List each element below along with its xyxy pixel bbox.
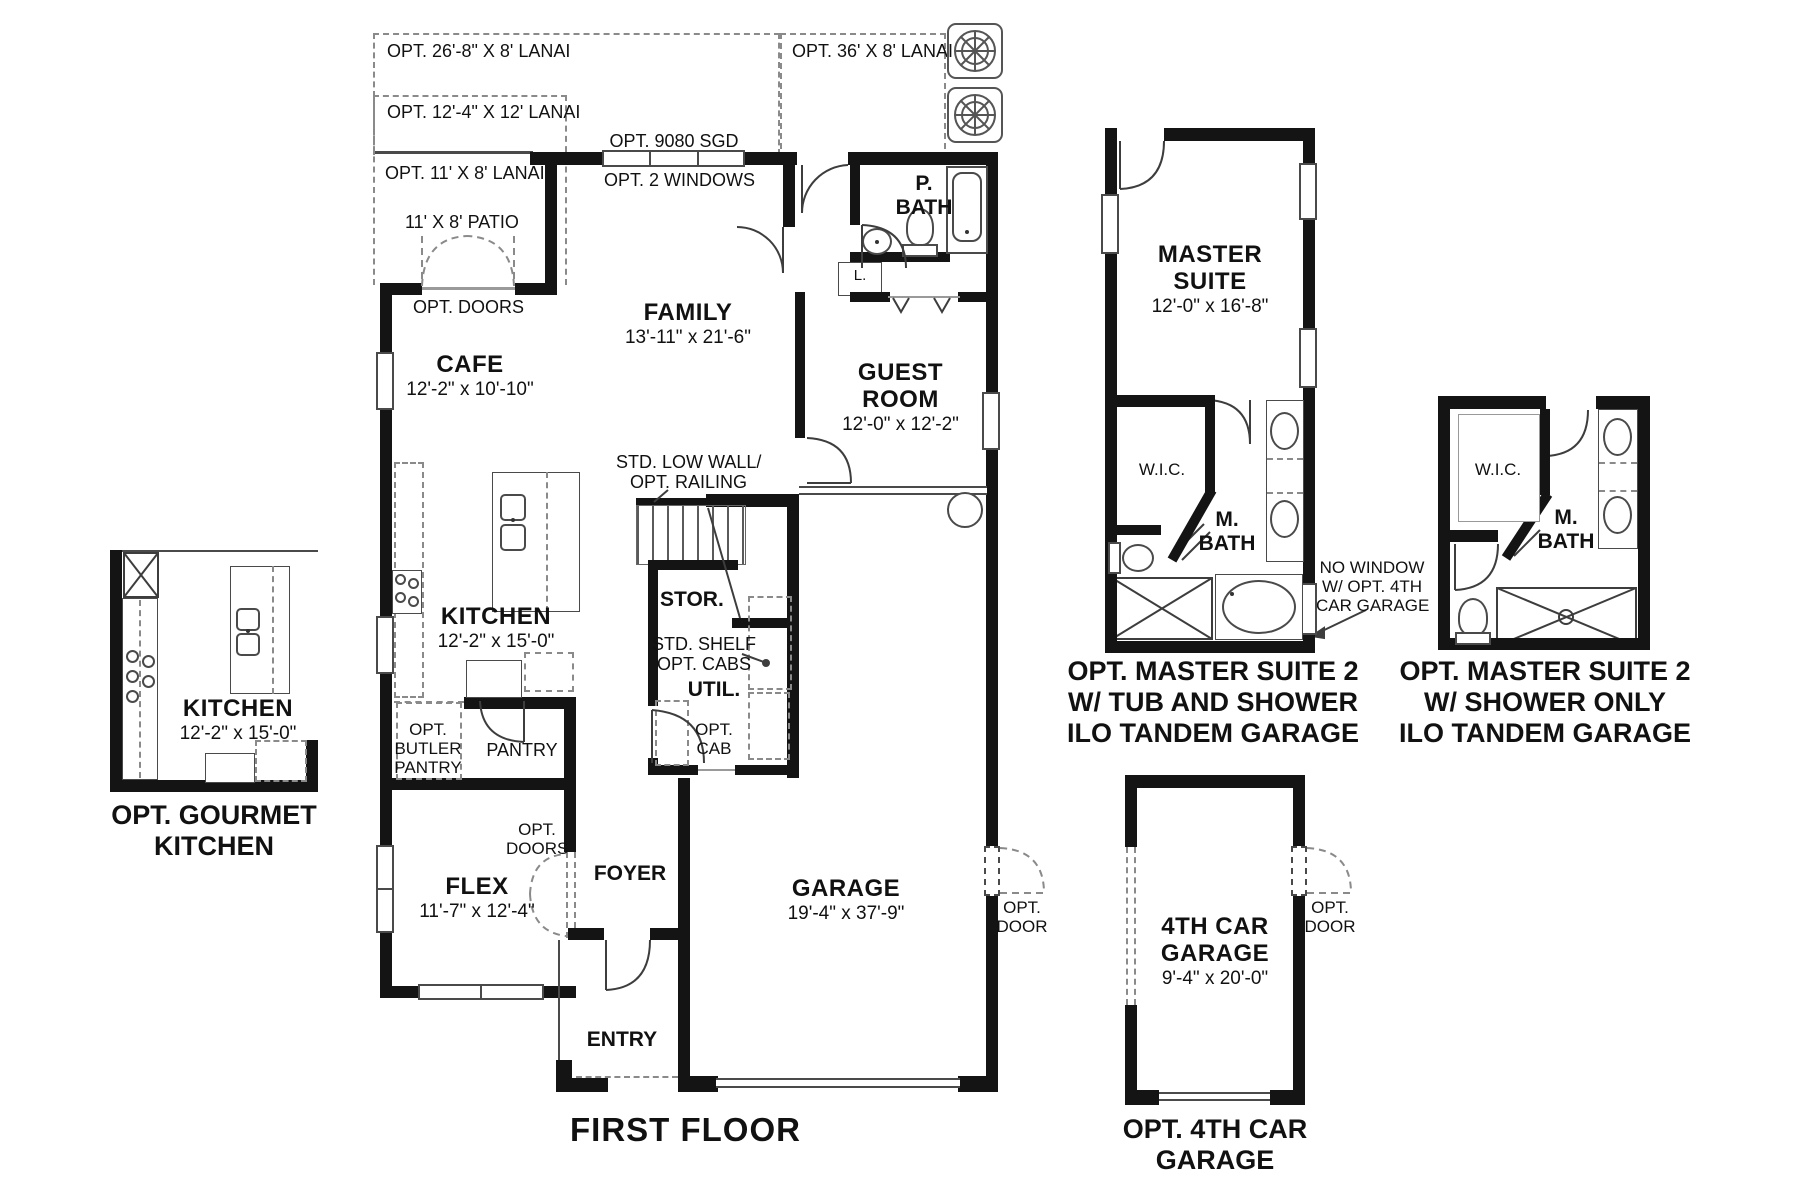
m2-wall-wic-right xyxy=(1540,409,1550,495)
pantry-label: PANTRY xyxy=(484,740,560,760)
util-label: UTIL. xyxy=(684,678,744,702)
m1-tub-faucet xyxy=(1230,592,1234,596)
pbath-label: P. BATH xyxy=(893,172,955,219)
gourmet-kitchen-name: KITCHEN xyxy=(162,696,314,723)
cafe-dims: 12'-2" x 10'-10" xyxy=(400,379,540,400)
kitchen-label: KITCHEN 12'-2" x 15'-0" xyxy=(418,604,574,652)
guest-label: GUEST ROOM 12'-0" x 12'-2" xyxy=(828,360,973,435)
m1-title-line2: W/ TUB AND SHOWER xyxy=(1058,687,1368,718)
m1-window-right-2 xyxy=(1299,328,1317,388)
first-floor-title: FIRST FLOOR xyxy=(558,1112,813,1149)
g4-opt-door-label: OPT. DOOR xyxy=(1300,898,1360,936)
m1-vanity-dash-2 xyxy=(1267,492,1303,496)
master1-entry-door-arc xyxy=(1120,141,1164,189)
gourmet-title: OPT. GOURMET KITCHEN xyxy=(88,800,340,862)
g4-name-line1: 4TH CAR xyxy=(1146,914,1284,941)
opt-doors-flex-line2: DOORS xyxy=(506,839,568,858)
gourmet-counter-dash xyxy=(139,600,143,778)
g4-wall-right xyxy=(1293,775,1305,1105)
m2-vanity-dash-2 xyxy=(1599,490,1637,494)
guest-v-mark-1 xyxy=(893,298,909,312)
family-dims: 13'-11" x 21'-6" xyxy=(613,327,763,348)
opt-doors-flex-line1: OPT. xyxy=(506,820,568,839)
gourmet-title-line1: OPT. GOURMET xyxy=(88,800,340,831)
m1-toilet-tank-icon xyxy=(1108,542,1121,574)
m2-title: OPT. MASTER SUITE 2 W/ SHOWER ONLY ILO T… xyxy=(1390,656,1700,748)
gourmet-burner-5 xyxy=(126,690,139,703)
m1-wall-wic-bottom xyxy=(1105,525,1161,535)
gourmet-sink-faucet xyxy=(246,629,250,633)
low-wall-label: STD. LOW WALL/ OPT. RAILING xyxy=(616,452,761,492)
m2-wic-label: W.I.C. xyxy=(1464,460,1532,479)
m1-sink-icon-1 xyxy=(1270,412,1299,450)
guest-dims: 12'-0" x 12'-2" xyxy=(828,414,973,435)
gourmet-wall-right-stub xyxy=(306,740,318,792)
m1-no-window-line2: W/ OPT. 4TH xyxy=(1316,577,1428,596)
flex-label: FLEX 11'-7" x 12'-4" xyxy=(412,874,542,922)
m2-wall-right xyxy=(1638,396,1650,650)
m1-title: OPT. MASTER SUITE 2 W/ TUB AND SHOWER IL… xyxy=(1058,656,1368,748)
m1-no-window-line3: CAR GARAGE xyxy=(1316,596,1428,615)
g4-opt-door-opening xyxy=(1291,846,1307,896)
g4-garage-door-opening xyxy=(1159,1092,1270,1101)
g4-door-stub-left xyxy=(1125,1090,1159,1105)
g4-left-dash-a xyxy=(1126,847,1130,1005)
m2-mbath-label: M. BATH xyxy=(1530,506,1602,553)
m1-no-window-line1: NO WINDOW xyxy=(1316,558,1428,577)
m1-master-line1: MASTER xyxy=(1136,242,1284,269)
m1-master-label: MASTER SUITE 12'-0" x 16'-8" xyxy=(1136,242,1284,317)
low-wall-line1: STD. LOW WALL/ xyxy=(616,452,761,472)
m2-title-line3: ILO TANDEM GARAGE xyxy=(1390,718,1700,749)
front-door-arc xyxy=(606,940,650,990)
m1-title-line1: OPT. MASTER SUITE 2 xyxy=(1058,656,1368,687)
cafe-name: CAFE xyxy=(400,352,540,379)
g4-title-line1: OPT. 4TH CAR xyxy=(1116,1114,1314,1145)
m1-window-right-1 xyxy=(1299,163,1317,220)
m1-mbath-label: M. BATH xyxy=(1192,508,1262,555)
opt-cab-line1: OPT. xyxy=(686,720,742,739)
garage-dims: 19'-4" x 37'-9" xyxy=(780,903,912,924)
m1-wall-wic-right xyxy=(1205,395,1215,493)
butler-line1: OPT. xyxy=(394,720,462,739)
g4-wall-left-top xyxy=(1125,775,1137,847)
m2-toilet-tank-icon xyxy=(1455,632,1491,645)
foyer-label: FOYER xyxy=(592,862,668,886)
guest-door-arc xyxy=(807,438,851,483)
m2-vanity-dash-1 xyxy=(1599,462,1637,466)
m1-toilet-bowl-icon xyxy=(1122,544,1154,572)
floor-plan-canvas: OPT. 26'-8" X 8' LANAI OPT. 12'-4" X 12'… xyxy=(0,0,1800,1200)
m2-title-line1: OPT. MASTER SUITE 2 xyxy=(1390,656,1700,687)
patio-opt-door-arc-left xyxy=(422,236,467,286)
family-top-door-arc xyxy=(802,165,848,213)
gourmet-cab-dashed xyxy=(255,740,307,782)
m1-master-dims: 12'-0" x 16'-8" xyxy=(1136,296,1284,317)
m2-mbath-line1: M. xyxy=(1530,506,1602,530)
g4-wall-top xyxy=(1125,775,1305,788)
garage4-opt-door-arc xyxy=(1307,848,1351,893)
gourmet-sink-a xyxy=(236,608,260,631)
butler-line3: PANTRY xyxy=(394,758,462,777)
pbath-door-arc xyxy=(862,225,906,268)
garage-opt-door-arc xyxy=(1000,848,1044,893)
g4-title-line2: GARAGE xyxy=(1116,1145,1314,1176)
g4-opt-door-line1: OPT. xyxy=(1300,898,1360,917)
m1-tub-inner xyxy=(1222,580,1296,634)
butler-line2: BUTLER xyxy=(394,739,462,758)
gourmet-sink-b xyxy=(236,633,260,656)
g4-left-dash-b xyxy=(1134,847,1138,1005)
m2-wall-left xyxy=(1438,396,1450,650)
guest-name-2: ROOM xyxy=(828,387,973,414)
g4-title: OPT. 4TH CAR GARAGE xyxy=(1116,1114,1314,1176)
gourmet-title-line2: KITCHEN xyxy=(88,831,340,862)
family-label: FAMILY 13'-11" x 21'-6" xyxy=(613,300,763,348)
m2-toilet-bowl-icon xyxy=(1458,598,1488,636)
guest-name-1: GUEST xyxy=(828,360,973,387)
m1-no-window-label: NO WINDOW W/ OPT. 4TH CAR GARAGE xyxy=(1316,558,1428,615)
flex-dims: 11'-7" x 12'-4" xyxy=(412,901,542,922)
gourmet-burner-4 xyxy=(142,675,155,688)
m1-sink-icon-2 xyxy=(1270,500,1299,538)
low-wall-line2: OPT. RAILING xyxy=(616,472,761,492)
m2-sink-icon-1 xyxy=(1603,418,1632,456)
gourmet-burner-2 xyxy=(142,655,155,668)
family-name: FAMILY xyxy=(613,300,763,327)
shelf-leader-dot xyxy=(763,660,769,666)
opt-door-garage-line2: DOOR xyxy=(992,917,1052,936)
opt-cab-line2: CAB xyxy=(686,739,742,758)
gourmet-top-line xyxy=(110,550,318,552)
opt-door-garage-line1: OPT. xyxy=(992,898,1052,917)
kitchen-name: KITCHEN xyxy=(418,604,574,631)
shelf-label: STD. SHELF OPT. CABS xyxy=(652,634,756,674)
cafe-label: CAFE 12'-2" x 10'-10" xyxy=(400,352,540,400)
shelf-line1: STD. SHELF xyxy=(652,634,756,654)
m1-mbath-line2: BATH xyxy=(1192,532,1262,556)
g4-dims: 9'-4" x 20'-0" xyxy=(1146,968,1284,989)
gourmet-kitchen-dims: 12'-2" x 15'-0" xyxy=(162,723,314,744)
kitchen-dims: 12'-2" x 15'-0" xyxy=(418,631,574,652)
g4-opt-door-line2: DOOR xyxy=(1300,917,1360,936)
entry-label: ENTRY xyxy=(584,1028,660,1052)
master2-left-door-arc xyxy=(1455,544,1498,590)
flex-name: FLEX xyxy=(412,874,542,901)
gourmet-kitchen-label: KITCHEN 12'-2" x 15'-0" xyxy=(162,696,314,744)
gourmet-counter-bottom xyxy=(205,753,255,783)
patio-opt-door-arc-right xyxy=(467,236,514,286)
m1-window-left xyxy=(1101,194,1119,254)
g4-name-line2: GARAGE xyxy=(1146,941,1284,968)
m2-wall-mid-left xyxy=(1438,530,1498,542)
m1-wall-bottom xyxy=(1105,641,1315,653)
m2-title-line2: W/ SHOWER ONLY xyxy=(1390,687,1700,718)
g4-door-stub-right xyxy=(1270,1090,1305,1105)
pantry-door-arc xyxy=(480,701,524,742)
opt-cab-label: OPT. CAB xyxy=(686,720,742,758)
m2-mbath-line2: BATH xyxy=(1530,530,1602,554)
master2-entry-door-arc xyxy=(1546,410,1588,456)
butler-pantry-label: OPT. BUTLER PANTRY xyxy=(394,720,462,777)
m1-mbath-line1: M. xyxy=(1192,508,1262,532)
g4-room-label: 4TH CAR GARAGE 9'-4" x 20'-0" xyxy=(1146,914,1284,989)
garage-label: GARAGE 19'-4" x 37'-9" xyxy=(780,876,912,924)
gourmet-burner-3 xyxy=(126,670,139,683)
gourmet-island-dash xyxy=(272,566,276,694)
opt-door-garage-label: OPT. DOOR xyxy=(992,898,1052,936)
garage-name: GARAGE xyxy=(780,876,912,903)
stor-label: STOR. xyxy=(660,588,720,612)
m1-title-line3: ILO TANDEM GARAGE xyxy=(1058,718,1368,749)
gourmet-wall-left xyxy=(110,550,122,792)
m1-vanity-dash-1 xyxy=(1267,458,1303,462)
shelf-line2: OPT. CABS xyxy=(652,654,756,674)
m2-sink-icon-2 xyxy=(1603,496,1632,534)
pbath-line1: P. xyxy=(893,172,955,196)
m1-wall-bed-divider xyxy=(1105,395,1207,407)
m1-master-line2: SUITE xyxy=(1136,269,1284,296)
gourmet-burner-1 xyxy=(126,650,139,663)
m1-wic-label: W.I.C. xyxy=(1128,460,1196,479)
opt-doors-flex-label: OPT. DOORS xyxy=(506,820,568,858)
m1-wall-top-b xyxy=(1164,128,1315,141)
guest-v-mark-2 xyxy=(934,298,950,312)
family-hall-door-arc xyxy=(737,227,783,273)
pbath-line2: BATH xyxy=(893,196,955,220)
m2-wall-top-a xyxy=(1438,396,1546,409)
